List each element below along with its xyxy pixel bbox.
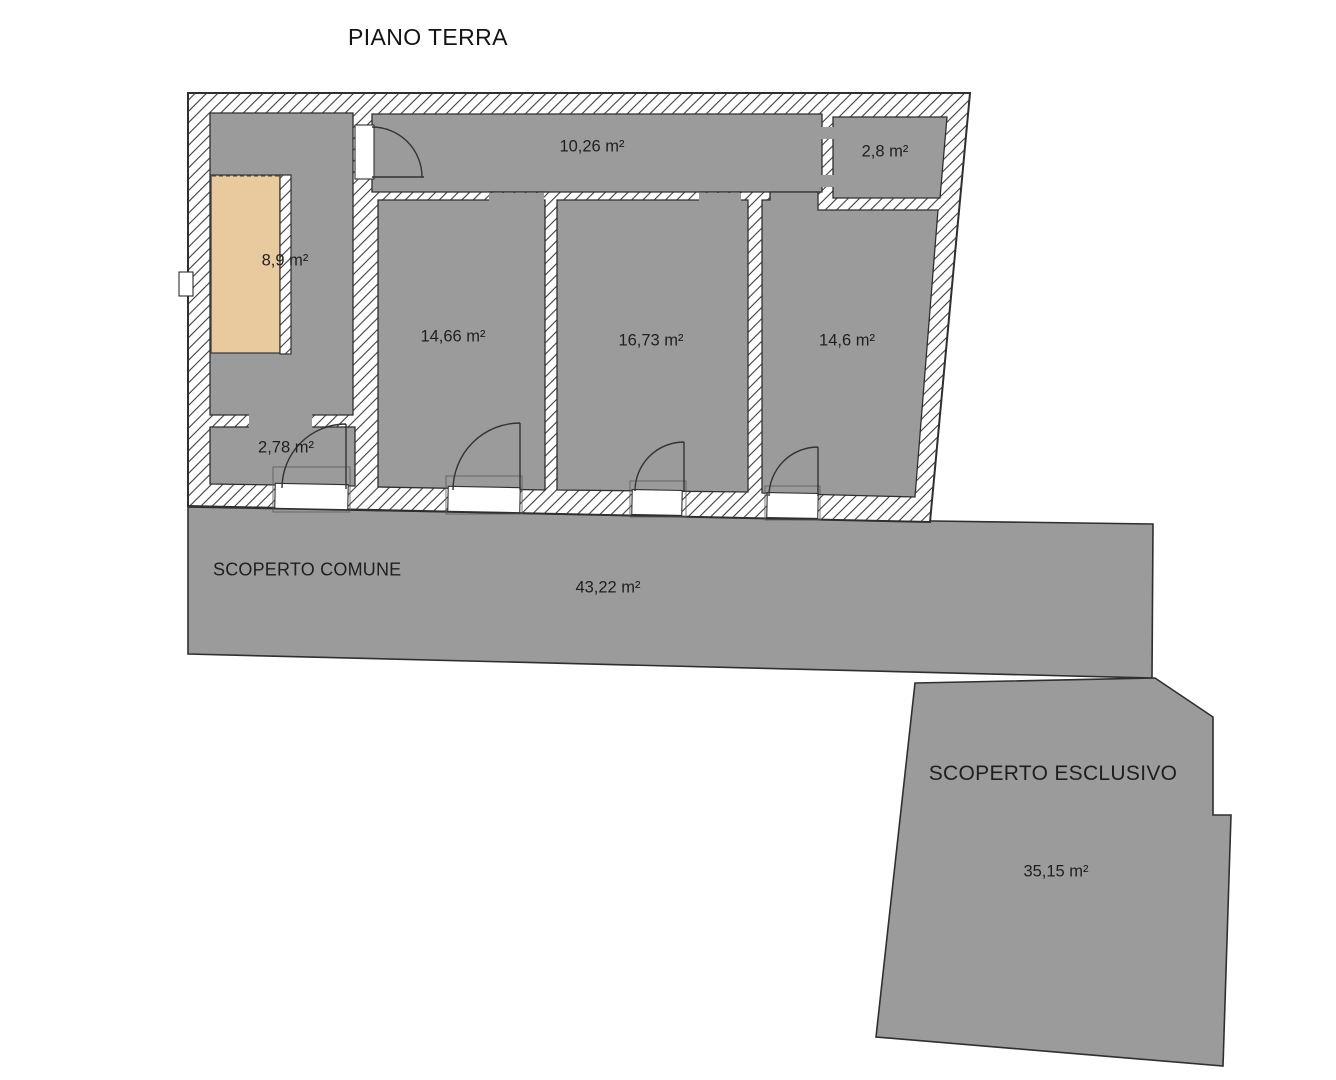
area-label-ripostiglio: 2,8 m² (862, 143, 909, 162)
opening-corridoio-locale1 (489, 193, 544, 205)
zone-label-scoperto-esclusivo: SCOPERTO ESCLUSIVO (929, 762, 1178, 786)
opening-wall-notch-upper (820, 127, 834, 139)
area-label-vano-scala: 8,9 m² (262, 252, 309, 271)
threshold-ingresso-door (275, 483, 348, 509)
threshold-locale-1-door (448, 486, 520, 512)
threshold-locale-3-door (767, 493, 818, 519)
threshold-corridoio-door (355, 125, 374, 179)
plan-title: PIANO TERRA (348, 24, 508, 51)
area-label-locale-2: 16,73 m² (618, 332, 683, 351)
area-label-scoperto-comune: 43,22 m² (575, 579, 640, 598)
opening-wall-notch-lower (820, 175, 834, 187)
left-wall-notch (179, 272, 193, 296)
area-label-scoperto-esclusivo: 35,15 m² (1023, 863, 1088, 882)
floor-plan-page: PIANO TERRA 10,26 m² 2,8 m² 8,9 m² 14,66… (0, 0, 1336, 1080)
area-label-locale-1: 14,66 m² (420, 328, 485, 347)
threshold-locale-2-door (632, 490, 682, 516)
opening-scala-ingresso (249, 410, 312, 430)
scoperto-comune-shape (188, 507, 1153, 678)
zone-label-scoperto-comune: SCOPERTO COMUNE (213, 560, 401, 581)
floor-plan-drawing (0, 0, 1336, 1080)
area-label-locale-3: 14,6 m² (819, 332, 875, 351)
area-label-ingresso: 2,78 m² (258, 439, 314, 458)
opening-corridoio-locale2 (699, 193, 741, 205)
area-label-corridoio: 10,26 m² (559, 138, 624, 157)
